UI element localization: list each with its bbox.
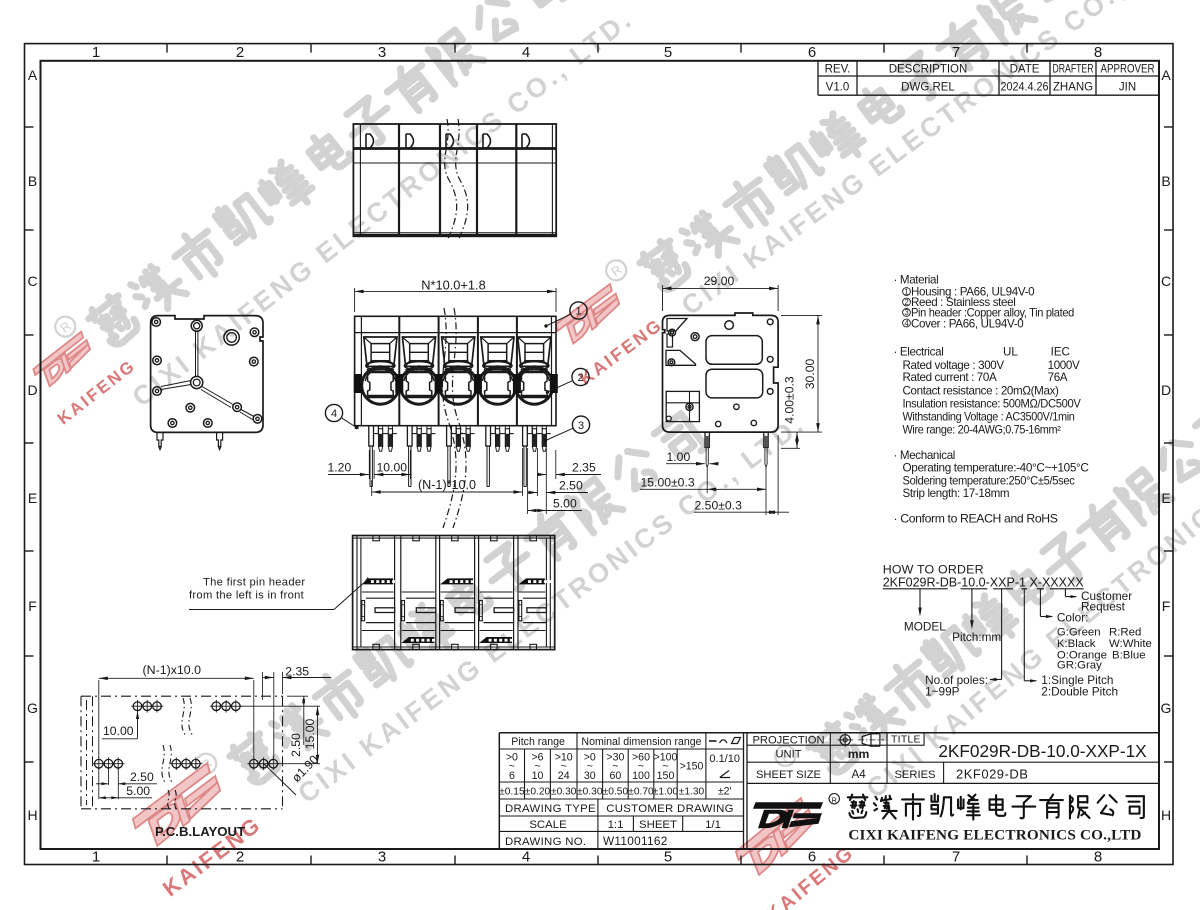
svg-text:A: A (28, 67, 38, 83)
svg-text:1~99P: 1~99P (925, 684, 960, 698)
svg-text:15.00±0.3: 15.00±0.3 (641, 476, 695, 490)
svg-text:SERIES: SERIES (894, 769, 935, 781)
svg-text:10.00: 10.00 (103, 724, 134, 738)
svg-text:±1.30: ±1.30 (679, 787, 705, 798)
svg-text:6: 6 (808, 44, 816, 61)
svg-text:IEC: IEC (1051, 346, 1070, 359)
svg-text:1.00: 1.00 (667, 450, 691, 464)
svg-text:3: 3 (578, 420, 584, 432)
svg-text:SCALE: SCALE (529, 819, 567, 831)
svg-text:G:Green: G:Green (1057, 627, 1101, 639)
svg-text:B:Blue: B:Blue (1112, 649, 1146, 661)
svg-text:2.35: 2.35 (572, 461, 596, 475)
svg-text:DRAWING NO.: DRAWING NO. (505, 836, 586, 848)
svg-text:150: 150 (657, 770, 675, 782)
svg-text:N*10.0+1.8: N*10.0+1.8 (421, 278, 485, 293)
svg-text:8: 8 (1094, 44, 1102, 61)
svg-text:DESCRIPTION: DESCRIPTION (889, 63, 968, 75)
svg-text:15.00: 15.00 (303, 719, 317, 750)
svg-text:4: 4 (522, 849, 530, 866)
svg-text:Nominal dimension range: Nominal dimension range (581, 736, 701, 748)
svg-text:1: 1 (92, 44, 100, 61)
svg-text:76A: 76A (1048, 371, 1068, 384)
svg-text:F: F (28, 598, 37, 614)
svg-text:6: 6 (509, 770, 515, 782)
svg-text:Operating temperature:-40°C~+1: Operating temperature:-40°C~+105°C (903, 462, 1089, 475)
svg-text:· Mechanical: · Mechanical (894, 449, 956, 462)
svg-text:4.00±0.3: 4.00±0.3 (783, 376, 797, 424)
svg-text:10: 10 (532, 770, 544, 782)
svg-text:The first pin header: The first pin header (203, 577, 305, 589)
svg-text:DWG.REL: DWG.REL (901, 82, 955, 94)
svg-text:1: 1 (575, 306, 581, 318)
svg-text:Cover : PA66, UL94V-0: Cover : PA66, UL94V-0 (911, 318, 1023, 331)
svg-text:Request: Request (1081, 600, 1126, 614)
svg-text:Pitch range: Pitch range (511, 736, 565, 748)
svg-text:0.1/10: 0.1/10 (709, 753, 740, 765)
svg-text:CUSTOMER DRAWING: CUSTOMER DRAWING (606, 803, 734, 815)
svg-text:from the left is in front: from the left is in front (189, 590, 305, 602)
svg-text:24: 24 (558, 770, 570, 782)
svg-text:mm: mm (848, 747, 869, 761)
svg-text:D: D (27, 382, 37, 398)
svg-text:CIXI KAIFENG ELECTRONICS CO.,L: CIXI KAIFENG ELECTRONICS CO.,LTD (848, 827, 1141, 844)
svg-text:100: 100 (632, 770, 650, 782)
svg-text:30.00: 30.00 (803, 359, 817, 390)
svg-text:2: 2 (236, 44, 244, 61)
svg-text:F: F (1162, 598, 1171, 614)
svg-text:±0.15: ±0.15 (499, 787, 525, 798)
svg-text:DRAFTER: DRAFTER (1053, 63, 1094, 75)
svg-text:A: A (1161, 67, 1171, 83)
svg-text:DRAWING TYPE: DRAWING TYPE (505, 803, 596, 815)
svg-text:Wire range: 20-4AWG;0.75-16mm²: Wire range: 20-4AWG;0.75-16mm² (903, 424, 1061, 437)
svg-text:7: 7 (952, 849, 960, 866)
svg-text:2KF029-DB: 2KF029-DB (956, 767, 1028, 782)
svg-text:B: B (28, 173, 37, 189)
svg-text:3: 3 (378, 44, 386, 61)
svg-text:6: 6 (808, 849, 816, 866)
svg-text:2KF029R-DB-10.0-XXP-1X: 2KF029R-DB-10.0-XXP-1X (938, 741, 1147, 761)
svg-text:G: G (27, 700, 38, 716)
svg-text:TITLE: TITLE (891, 735, 921, 746)
svg-text:Withstanding Voltage : AC3500V: Withstanding Voltage : AC3500V/1min (903, 411, 1075, 424)
svg-text:1:1: 1:1 (608, 819, 624, 831)
svg-text:SHEET SIZE: SHEET SIZE (756, 769, 821, 781)
svg-text:2.50: 2.50 (130, 770, 154, 784)
svg-text:Rated current : 70A: Rated current : 70A (903, 371, 998, 384)
svg-text:1.20: 1.20 (328, 461, 352, 475)
svg-text:8: 8 (1094, 849, 1102, 866)
svg-text:R: R (832, 795, 837, 804)
svg-text:4: 4 (331, 408, 337, 420)
svg-text:Strip length: 17-18mm: Strip length: 17-18mm (903, 487, 1010, 500)
svg-text:1: 1 (904, 287, 908, 296)
svg-text:30: 30 (584, 770, 596, 782)
svg-text:5.00: 5.00 (553, 497, 577, 511)
svg-text:W:White: W:White (1109, 638, 1152, 650)
svg-text:1/1: 1/1 (705, 819, 721, 831)
svg-text:K:Black: K:Black (1057, 638, 1096, 650)
svg-text:4: 4 (522, 44, 530, 61)
svg-text:60: 60 (610, 770, 622, 782)
svg-text:G: G (1161, 700, 1172, 716)
svg-text:W11001162: W11001162 (603, 834, 668, 848)
svg-text:(N-1)x10.0: (N-1)x10.0 (143, 663, 202, 677)
svg-text:V1.0: V1.0 (826, 82, 850, 94)
svg-text:GR:Gray: GR:Gray (1057, 659, 1102, 671)
svg-text:P.C.B.LAYOUT: P.C.B.LAYOUT (155, 824, 245, 839)
svg-text:E: E (28, 490, 37, 506)
svg-text:H: H (1161, 807, 1171, 823)
svg-text:2:Double Pitch: 2:Double Pitch (1041, 684, 1118, 698)
svg-text:±0.30: ±0.30 (577, 787, 603, 798)
svg-text:UL: UL (1003, 346, 1018, 359)
svg-text:2: 2 (236, 849, 244, 866)
svg-text:2.50±0.3: 2.50±0.3 (695, 499, 743, 513)
svg-text:JIN: JIN (1119, 82, 1136, 94)
svg-text:MODEL: MODEL (904, 620, 946, 634)
svg-text:APPROVER: APPROVER (1101, 63, 1155, 75)
svg-text:±0.30: ±0.30 (551, 787, 577, 798)
svg-text:Pitch:mm: Pitch:mm (952, 630, 1001, 644)
svg-text:5.00: 5.00 (126, 784, 150, 798)
svg-text:A4: A4 (852, 768, 867, 781)
svg-text:Contact resistance : 20mΩ(Max): Contact resistance : 20mΩ(Max) (903, 385, 1060, 398)
svg-text:2.50: 2.50 (559, 479, 583, 493)
svg-text:· Electrical: · Electrical (894, 346, 944, 359)
svg-text:2.50: 2.50 (289, 733, 303, 757)
svg-text:· Conform to REACH and RoHS: · Conform to REACH and RoHS (894, 513, 1059, 526)
svg-text:29.00: 29.00 (704, 274, 735, 288)
svg-text:Insulation resistance: 500MΩ/D: Insulation resistance: 500MΩ/DC500V (903, 398, 1082, 411)
svg-text:>150: >150 (680, 761, 704, 773)
svg-text:4: 4 (904, 319, 909, 328)
svg-text:C: C (27, 273, 37, 289)
svg-text:REV.: REV. (825, 63, 851, 75)
svg-text:±0.50: ±0.50 (603, 787, 629, 798)
svg-text:(N-1)*10.0: (N-1)*10.0 (418, 478, 476, 492)
svg-text:E: E (1161, 490, 1170, 506)
svg-text:2KF029R-DB-10.0-XXP-1 X-XXXXX: 2KF029R-DB-10.0-XXP-1 X-XXXXX (883, 575, 1085, 589)
svg-text:2: 2 (904, 298, 908, 307)
svg-text:B: B (1161, 173, 1170, 189)
svg-text:DATE: DATE (1010, 63, 1040, 75)
svg-text:5: 5 (664, 849, 672, 866)
svg-text:Soldering temperature:250°C±5/: Soldering temperature:250°C±5/5sec (903, 475, 1076, 488)
svg-text:7: 7 (952, 44, 960, 61)
svg-text:5: 5 (664, 44, 672, 61)
svg-text:PROJECTION: PROJECTION (752, 734, 824, 746)
svg-text:3: 3 (904, 308, 908, 317)
svg-text:UNIT: UNIT (775, 749, 801, 761)
svg-text:2024.4.26: 2024.4.26 (1001, 82, 1049, 94)
svg-text:SHEET: SHEET (639, 819, 677, 831)
svg-text:C: C (1161, 273, 1171, 289)
svg-text:H: H (27, 807, 37, 823)
svg-text:R:Red: R:Red (1109, 627, 1141, 639)
svg-text:10.00: 10.00 (377, 461, 408, 475)
svg-text:±1.00: ±1.00 (653, 787, 679, 798)
svg-text:ZHANG: ZHANG (1053, 82, 1093, 94)
svg-text:2: 2 (577, 372, 583, 384)
svg-text:D: D (1161, 382, 1171, 398)
svg-text:1: 1 (92, 849, 100, 866)
svg-text:±0.70: ±0.70 (628, 787, 654, 798)
svg-text:±2': ±2' (718, 786, 732, 798)
svg-text:3: 3 (378, 849, 386, 866)
svg-text:±0.20: ±0.20 (525, 787, 551, 798)
